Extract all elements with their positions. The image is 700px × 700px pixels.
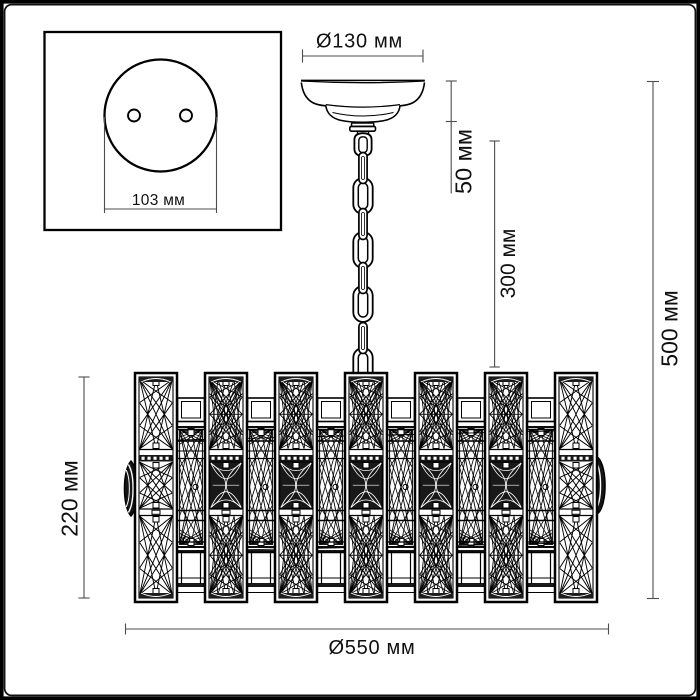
svg-text:220 мм: 220 мм bbox=[57, 460, 83, 536]
svg-text:500 мм: 500 мм bbox=[657, 290, 683, 366]
svg-text:50 мм: 50 мм bbox=[451, 129, 477, 194]
svg-text:Ø550 мм: Ø550 мм bbox=[329, 637, 416, 659]
svg-text:300 мм: 300 мм bbox=[497, 229, 520, 299]
svg-text:Ø130 мм: Ø130 мм bbox=[316, 30, 403, 52]
svg-text:103 мм: 103 мм bbox=[132, 192, 185, 209]
